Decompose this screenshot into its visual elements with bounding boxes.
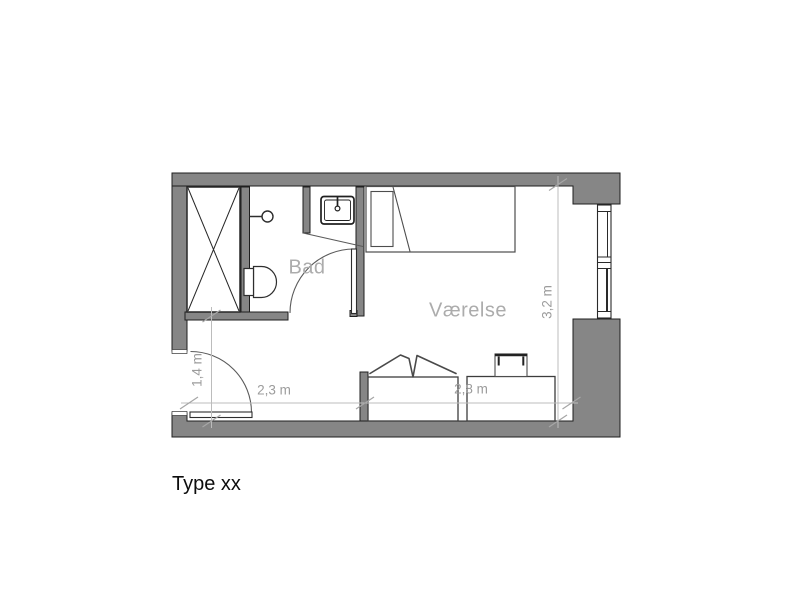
entry-door-sill-top (172, 350, 187, 354)
shower-symbol (250, 211, 274, 222)
bathroom-door-leaf (352, 249, 357, 314)
sink-symbol (321, 197, 354, 225)
dim-label-entry-depth: 1,4 m (190, 353, 205, 387)
dim-label-entry-width: 2,3 m (257, 383, 291, 398)
wall-bath-right (356, 187, 364, 316)
chair-symbol-left (370, 355, 456, 377)
dim-label-room-depth: 3,2 m (540, 285, 555, 319)
desk-symbol-left (368, 377, 458, 421)
wardrobe-symbol (187, 187, 240, 312)
entry-door-sill-bottom (172, 412, 187, 416)
wall-bath-bottom (185, 312, 288, 320)
floor-plan-drawing (0, 0, 800, 600)
chair-symbol-right (495, 354, 527, 377)
toilet-symbol (244, 267, 277, 298)
wall-entry-partition (360, 372, 368, 421)
bed-symbol (366, 187, 515, 253)
wall-left-upper (172, 186, 187, 351)
niche-opening-line (303, 233, 363, 247)
wall-sink-niche (303, 187, 310, 233)
room-label-bad: Bad (288, 257, 325, 280)
floor-plan-canvas: Bad Værelse 1,4 m 2,3 m 2,8 m 3,2 m Type… (0, 0, 800, 600)
room-label-vaerelse: Værelse (429, 300, 507, 323)
plan-title: Type xx (172, 473, 241, 496)
dim-label-desk-wall: 2,8 m (454, 382, 488, 397)
window-symbol (598, 205, 612, 318)
entry-door-leaf (190, 412, 252, 418)
